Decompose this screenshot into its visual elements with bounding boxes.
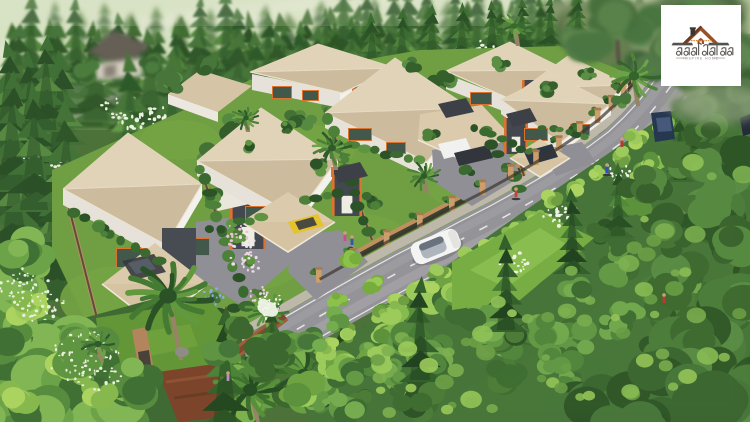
svg-text:INSPIRE HOME: INSPIRE HOME bbox=[683, 57, 718, 61]
